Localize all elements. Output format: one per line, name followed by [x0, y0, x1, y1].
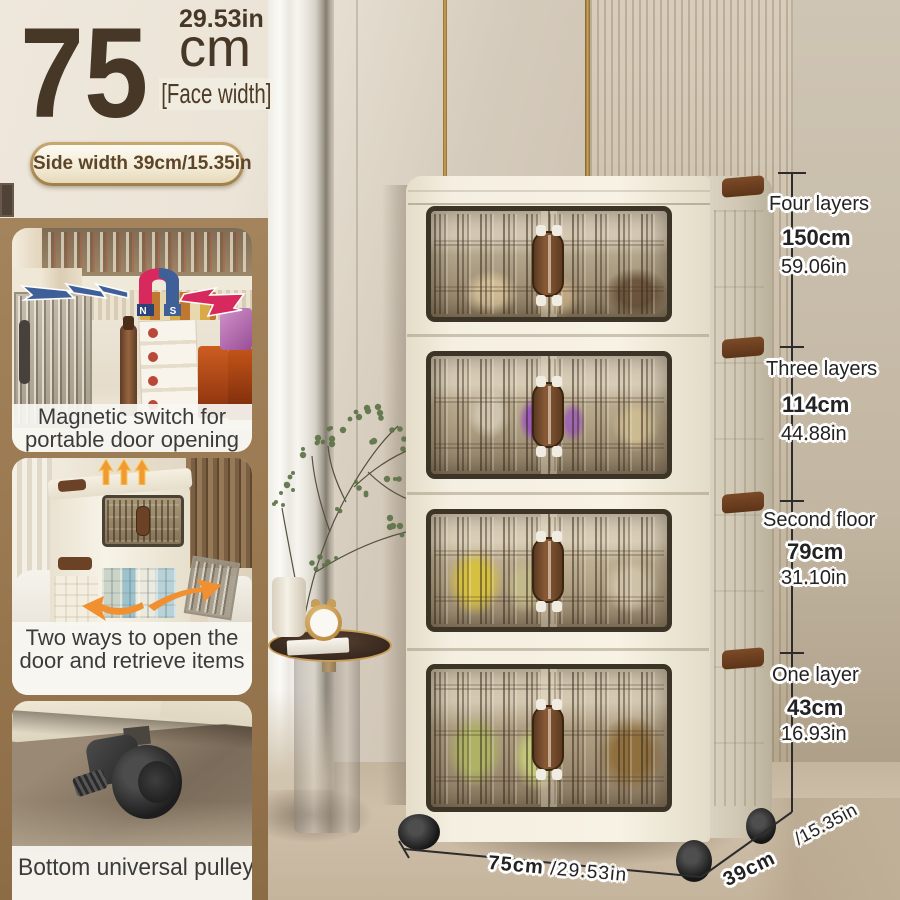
- svg-text:N: N: [139, 306, 146, 317]
- svg-text:S: S: [170, 306, 177, 317]
